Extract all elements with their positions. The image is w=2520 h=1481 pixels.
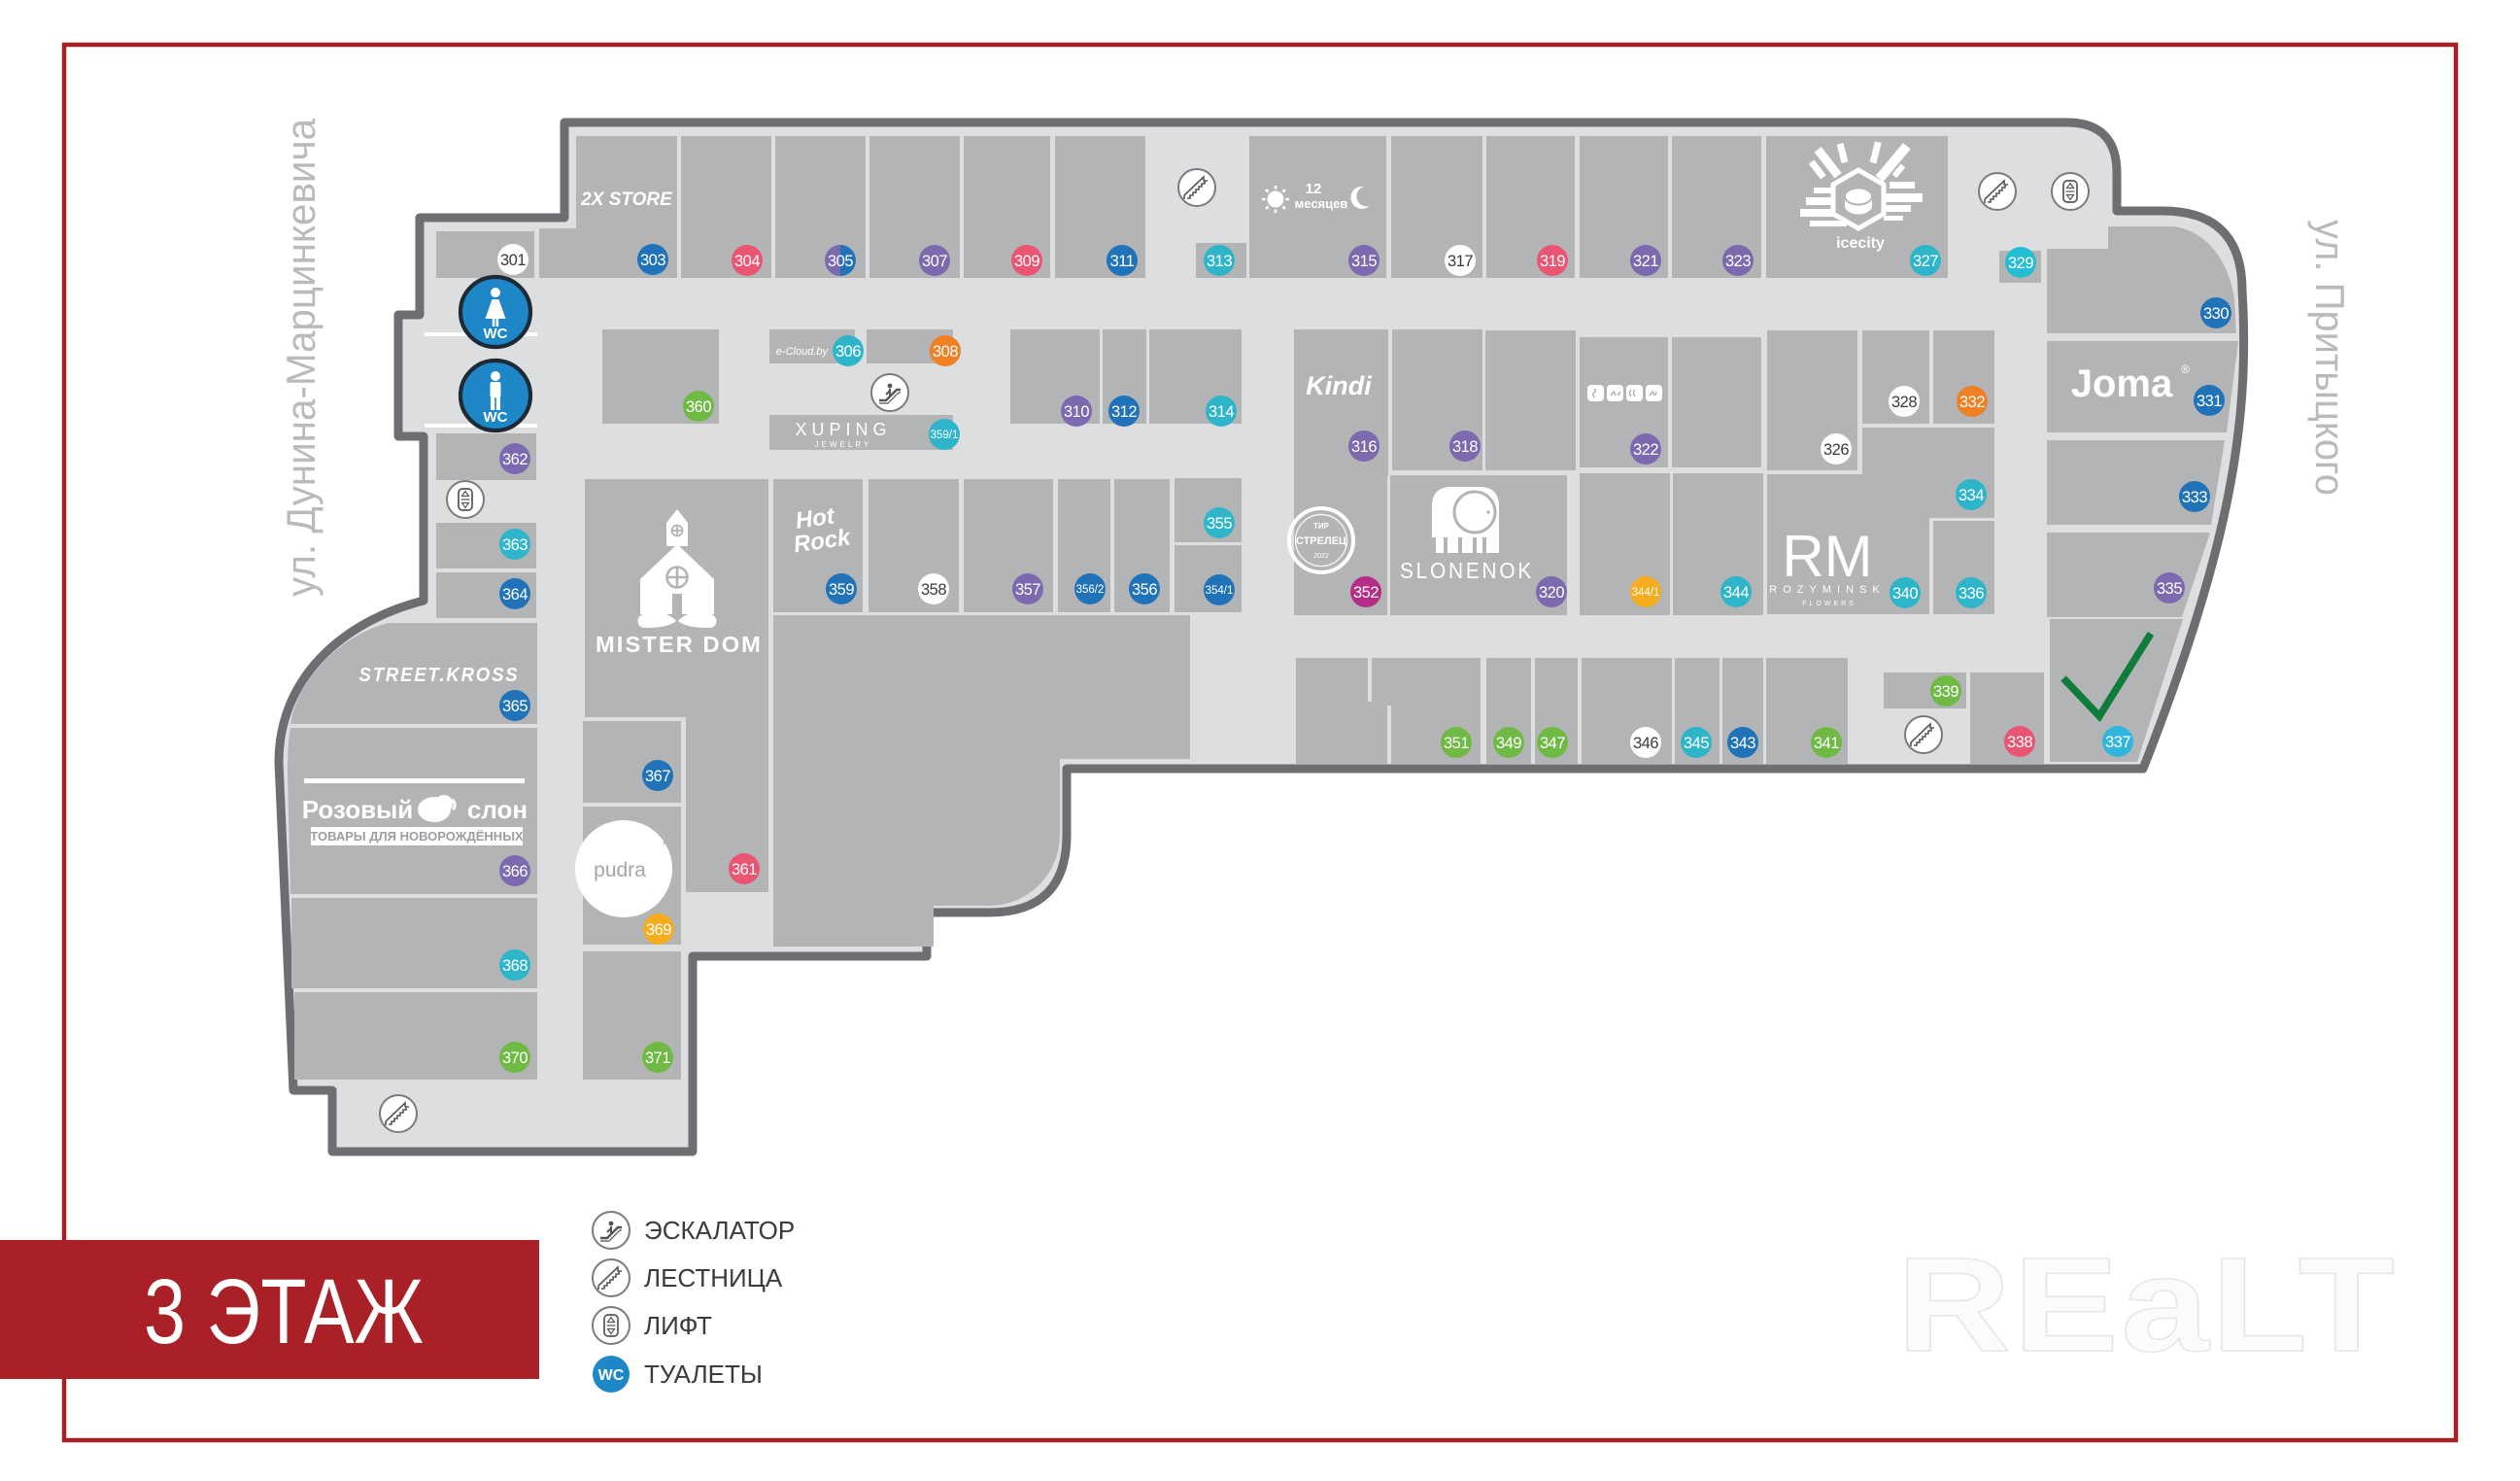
svg-text:306: 306 [835, 343, 861, 361]
svg-text:354/1: 354/1 [1206, 585, 1234, 597]
svg-text:304: 304 [734, 253, 760, 270]
svg-text:ТОВАРЫ ДЛЯ НОВОРОЖДЁННЫХ: ТОВАРЫ ДЛЯ НОВОРОЖДЁННЫХ [310, 829, 524, 844]
svg-text:357: 357 [1015, 581, 1040, 599]
svg-text:ул. Притыцкого: ул. Притыцкого [2307, 220, 2353, 496]
svg-text:2X STORE: 2X STORE [580, 189, 673, 210]
svg-text:2022: 2022 [1313, 553, 1329, 560]
svg-text:pudra: pudra [594, 859, 646, 881]
svg-text:335: 335 [2157, 580, 2182, 598]
svg-text:337: 337 [2105, 734, 2130, 751]
svg-text:355: 355 [1207, 515, 1232, 533]
svg-text:СТРЕЛЕЦ: СТРЕЛЕЦ [1296, 535, 1346, 547]
svg-text:332: 332 [1959, 394, 1985, 411]
svg-text:WC: WC [484, 409, 508, 426]
svg-text:359: 359 [829, 581, 854, 599]
svg-text:FLOWERS: FLOWERS [1802, 601, 1856, 607]
svg-text:344: 344 [1723, 584, 1749, 602]
svg-text:331: 331 [2196, 393, 2222, 410]
svg-text:316: 316 [1351, 438, 1377, 456]
svg-text:icecity: icecity [1836, 235, 1885, 252]
svg-text:333: 333 [2182, 489, 2207, 506]
svg-text:ТИР: ТИР [1313, 522, 1330, 531]
svg-text:349: 349 [1496, 735, 1521, 752]
svg-text:e-Cloud.by: e-Cloud.by [776, 346, 830, 358]
svg-text:364: 364 [502, 586, 528, 603]
svg-text:339: 339 [1933, 683, 1958, 701]
svg-text:368: 368 [502, 957, 528, 975]
svg-text:362: 362 [502, 451, 528, 468]
svg-text:301: 301 [500, 252, 526, 269]
svg-text:360: 360 [686, 398, 711, 416]
svg-text:323: 323 [1725, 253, 1751, 270]
svg-text:318: 318 [1452, 438, 1478, 456]
svg-text:311: 311 [1110, 253, 1135, 270]
svg-text:315: 315 [1351, 253, 1377, 270]
svg-text:369: 369 [646, 921, 671, 939]
svg-text:344/1: 344/1 [1632, 587, 1660, 599]
svg-text:363: 363 [502, 536, 528, 554]
svg-text:REaLT: REaLT [1897, 1230, 2398, 1380]
svg-text:366: 366 [502, 863, 528, 880]
svg-text:309: 309 [1014, 253, 1039, 270]
svg-text:слон: слон [467, 795, 528, 824]
svg-text:WC: WC [484, 326, 508, 342]
svg-text:JEWELRY: JEWELRY [815, 440, 872, 449]
svg-text:ул. Дунина-Марцинкевича: ул. Дунина-Марцинкевича [278, 118, 324, 597]
svg-text:310: 310 [1064, 403, 1089, 421]
svg-text:STREET.KROSS: STREET.KROSS [359, 665, 520, 686]
svg-text:WC: WC [598, 1367, 625, 1384]
svg-text:352: 352 [1353, 584, 1379, 602]
svg-text:314: 314 [1209, 403, 1234, 421]
svg-text:SLONENOK: SLONENOK [1400, 558, 1534, 583]
svg-text:Kindi: Kindi [1306, 371, 1372, 400]
svg-text:XUPING: XUPING [795, 420, 891, 439]
svg-text:365: 365 [502, 698, 528, 715]
svg-text:ЭСКАЛАТОР: ЭСКАЛАТОР [644, 1216, 795, 1245]
svg-text:12: 12 [1306, 181, 1322, 197]
svg-text:346: 346 [1633, 735, 1658, 752]
svg-text:месяцев: месяцев [1295, 196, 1348, 211]
svg-text:327: 327 [1913, 253, 1938, 270]
svg-text:ЛЕСТНИЦА: ЛЕСТНИЦА [644, 1263, 783, 1292]
svg-text:308: 308 [933, 343, 958, 361]
svg-text:361: 361 [732, 861, 757, 878]
svg-text:356: 356 [1132, 581, 1157, 599]
svg-text:MISTER DOM: MISTER DOM [596, 632, 763, 657]
svg-text:347: 347 [1540, 735, 1565, 752]
svg-text:341: 341 [1814, 735, 1839, 752]
svg-text:371: 371 [645, 1050, 670, 1067]
svg-text:320: 320 [1539, 584, 1564, 602]
svg-text:328: 328 [1891, 394, 1917, 411]
svg-text:351: 351 [1444, 735, 1469, 752]
svg-text:338: 338 [2007, 734, 2032, 751]
svg-text:by: by [663, 832, 678, 848]
svg-text:340: 340 [1892, 585, 1918, 603]
svg-text:319: 319 [1540, 253, 1565, 270]
svg-text:356/2: 356/2 [1076, 584, 1105, 596]
svg-text:Joma: Joma [2071, 362, 2173, 405]
svg-text:359/1: 359/1 [931, 430, 959, 441]
svg-text:345: 345 [1684, 735, 1709, 752]
svg-text:330: 330 [2203, 305, 2229, 323]
svg-text:336: 336 [1958, 585, 1984, 603]
svg-text:343: 343 [1730, 735, 1755, 752]
svg-text:313: 313 [1207, 253, 1232, 270]
svg-text:303: 303 [640, 252, 665, 269]
svg-text:ЛИФТ: ЛИФТ [644, 1311, 712, 1340]
svg-text:312: 312 [1111, 403, 1137, 421]
svg-text:305: 305 [828, 253, 853, 270]
svg-text:317: 317 [1447, 253, 1473, 270]
svg-text:329: 329 [2008, 255, 2033, 272]
svg-text:367: 367 [645, 768, 670, 785]
svg-text:307: 307 [922, 253, 947, 270]
svg-text:358: 358 [921, 581, 946, 599]
svg-text:ТУАЛЕТЫ: ТУАЛЕТЫ [644, 1360, 763, 1389]
svg-text:3 ЭТАЖ: 3 ЭТАЖ [144, 1260, 424, 1363]
svg-text:®: ® [2181, 362, 2190, 376]
svg-text:334: 334 [1958, 487, 1984, 504]
svg-text:321: 321 [1633, 253, 1658, 270]
svg-text:370: 370 [502, 1050, 528, 1067]
svg-text:ROZYMINSK: ROZYMINSK [1769, 584, 1885, 596]
svg-text:322: 322 [1633, 441, 1658, 459]
svg-text:RM: RM [1782, 524, 1872, 589]
svg-text:Розовый: Розовый [302, 795, 414, 824]
svg-text:326: 326 [1823, 441, 1849, 459]
